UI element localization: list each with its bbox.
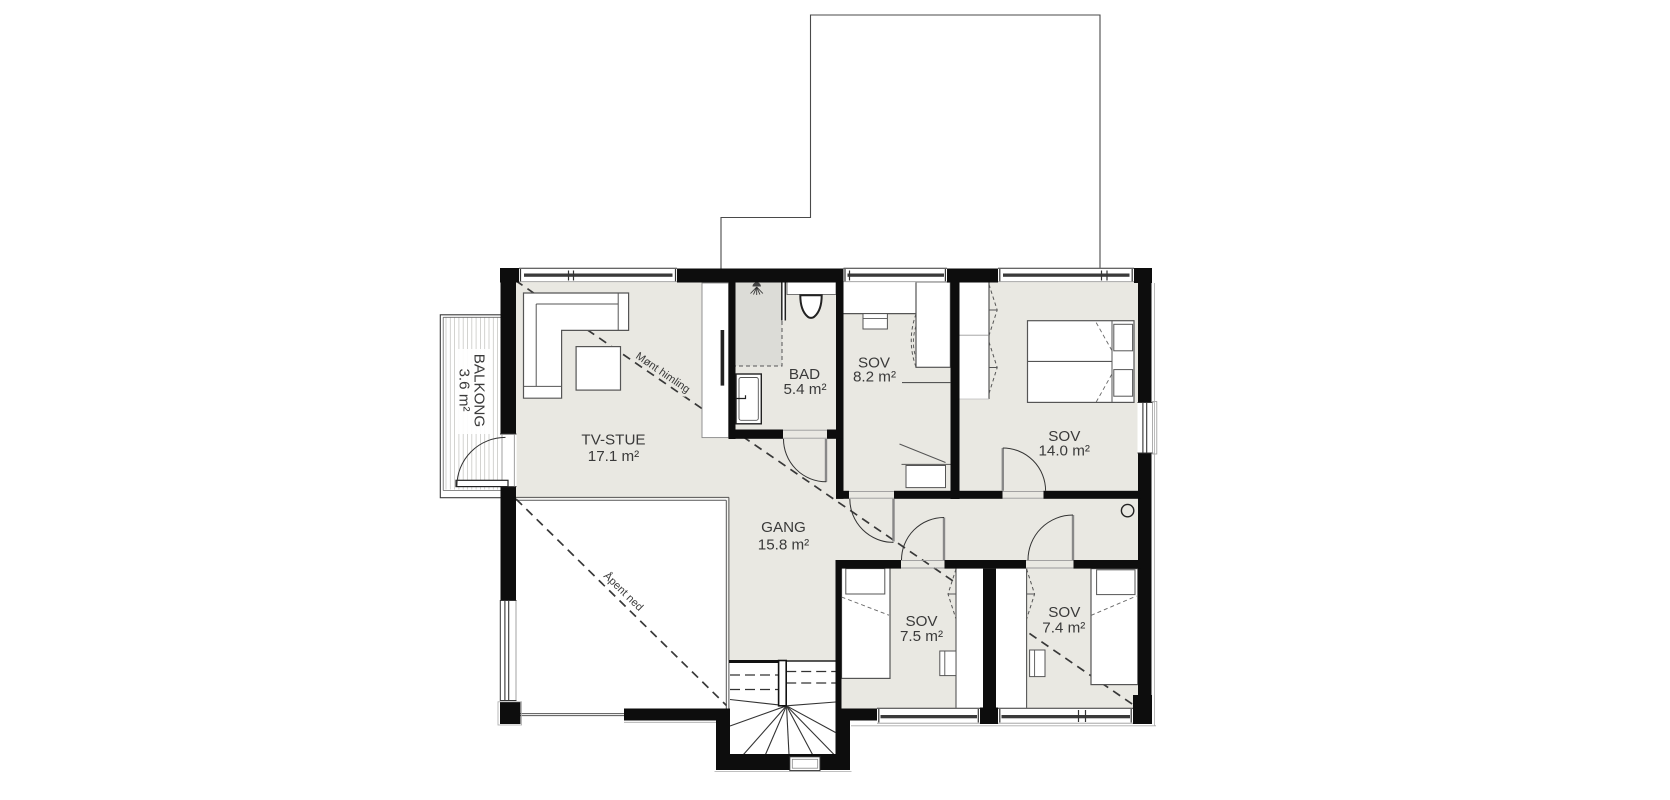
svg-text:7.5 m²: 7.5 m²: [900, 628, 943, 645]
svg-text:8.2 m²: 8.2 m²: [853, 369, 896, 386]
svg-text:TV-STUE: TV-STUE: [581, 432, 645, 449]
svg-text:5.4 m²: 5.4 m²: [783, 381, 826, 398]
svg-text:GANG: GANG: [761, 519, 806, 536]
svg-text:7.4 m²: 7.4 m²: [1042, 619, 1085, 636]
svg-text:15.8 m²: 15.8 m²: [758, 537, 810, 554]
svg-text:14.0 m²: 14.0 m²: [1038, 443, 1090, 460]
svg-text:3.6 m²: 3.6 m²: [456, 368, 473, 411]
svg-text:17.1 m²: 17.1 m²: [588, 448, 640, 465]
